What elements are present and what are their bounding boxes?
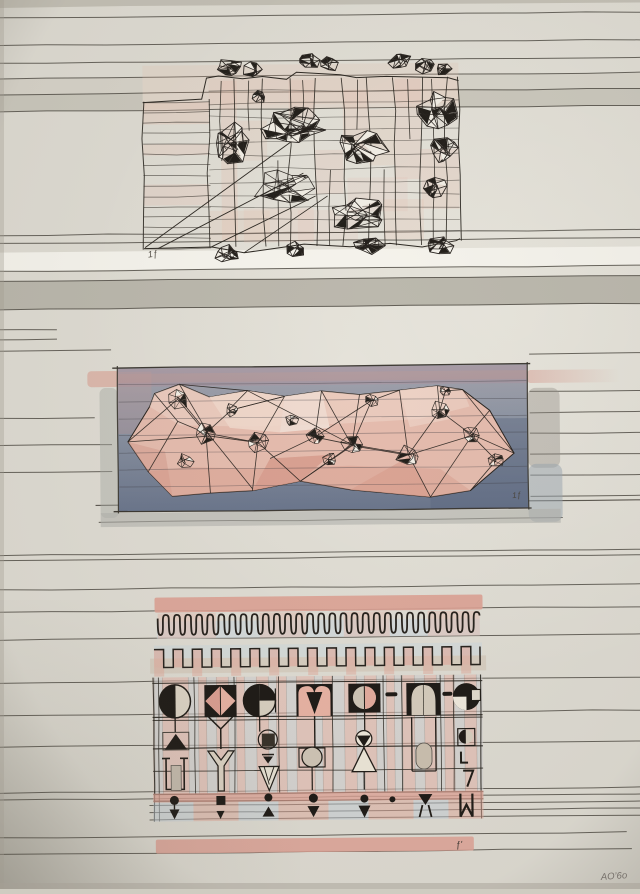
svg-text:AO’6o: AO’6o (599, 870, 627, 883)
